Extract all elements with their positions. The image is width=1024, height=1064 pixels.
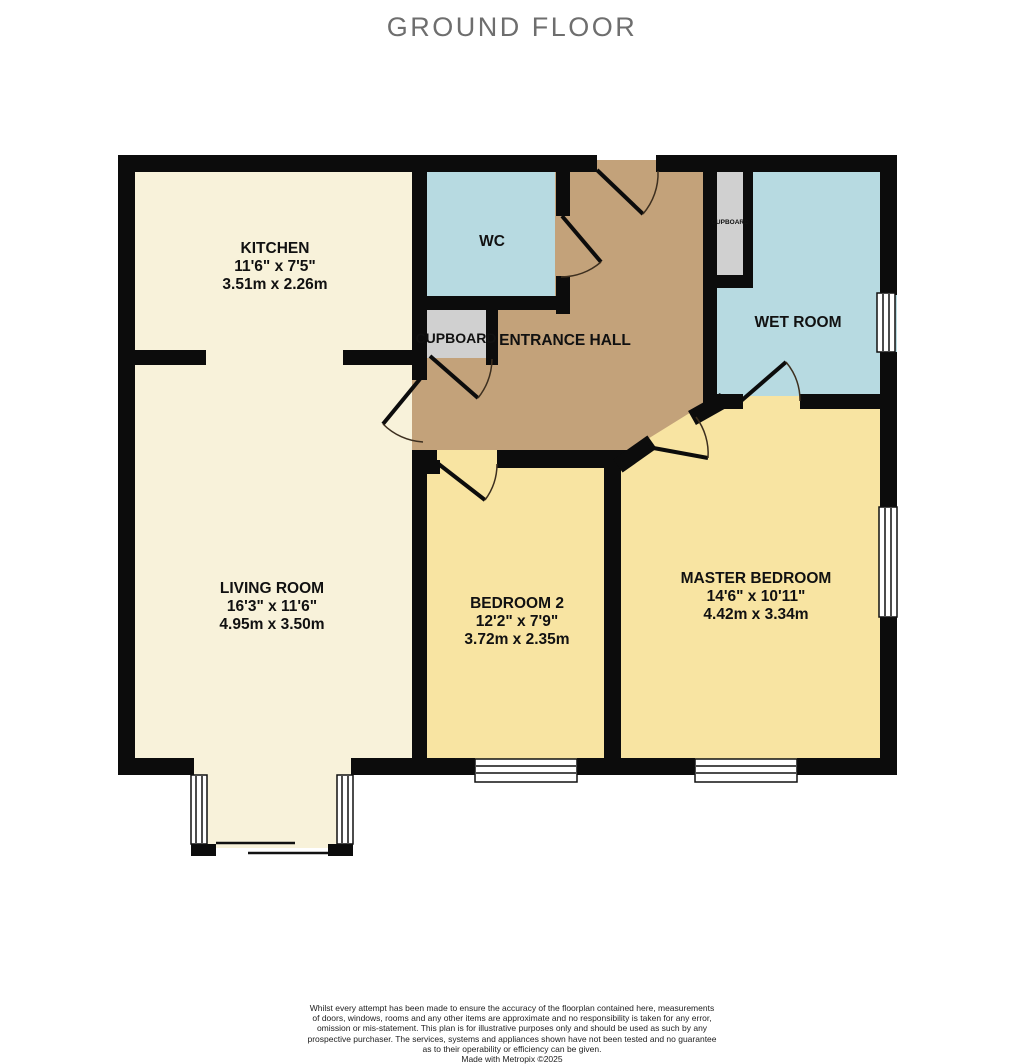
bay-right-window xyxy=(337,775,353,844)
living-room-dims-imperial: 16'3" x 11'6" xyxy=(227,598,317,615)
disclaimer: Whilst every attempt has been made to en… xyxy=(0,1003,1024,1064)
master-side-window xyxy=(879,507,897,617)
bedroom2-dims-metric: 3.72m x 2.35m xyxy=(464,631,569,648)
bay-left-window xyxy=(191,775,207,844)
kitchen-dims-metric: 3.51m x 2.26m xyxy=(222,276,327,293)
master-bedroom-label: MASTER BEDROOM xyxy=(681,570,832,587)
disclaimer-line: as to their operability or efficiency ca… xyxy=(0,1044,1024,1054)
entrance-hall-label: ENTRANCE HALL xyxy=(499,332,631,349)
kitchen-dims-imperial: 11'6" x 7'5" xyxy=(234,258,316,275)
disclaimer-line: omission or mis-statement. This plan is … xyxy=(0,1023,1024,1033)
disclaimer-line: Whilst every attempt has been made to en… xyxy=(0,1003,1024,1013)
disclaimer-credit: Made with Metropix ©2025 xyxy=(0,1054,1024,1064)
disclaimer-line: of doors, windows, rooms and any other i… xyxy=(0,1013,1024,1023)
master-bedroom-dims-imperial: 14'6" x 10'11" xyxy=(707,588,806,605)
bedroom2-dims-imperial: 12'2" x 7'9" xyxy=(476,613,558,630)
wc-label: WC xyxy=(479,233,505,250)
master-bedroom-dims-metric: 4.42m x 3.34m xyxy=(703,606,808,623)
living-room-dims-metric: 4.95m x 3.50m xyxy=(219,616,324,633)
disclaimer-line: prospective purchaser. The services, sys… xyxy=(0,1034,1024,1044)
small-cupboard-label: CUPBOARD xyxy=(711,219,749,226)
bedroom2-label: BEDROOM 2 xyxy=(470,595,564,612)
wet-room-label: WET ROOM xyxy=(755,314,842,331)
bedroom2-window xyxy=(475,759,577,782)
kitchen-label: KITCHEN xyxy=(241,240,310,257)
floorplan-drawing: KITCHEN 11'6" x 7'5" 3.51m x 2.26m WC CU… xyxy=(0,0,1024,1056)
hall-cupboard-label: CUPBOARD xyxy=(416,330,497,346)
wet-room-window xyxy=(877,293,895,352)
living-room-label: LIVING ROOM xyxy=(220,580,324,597)
master-bottom-window xyxy=(695,759,797,782)
